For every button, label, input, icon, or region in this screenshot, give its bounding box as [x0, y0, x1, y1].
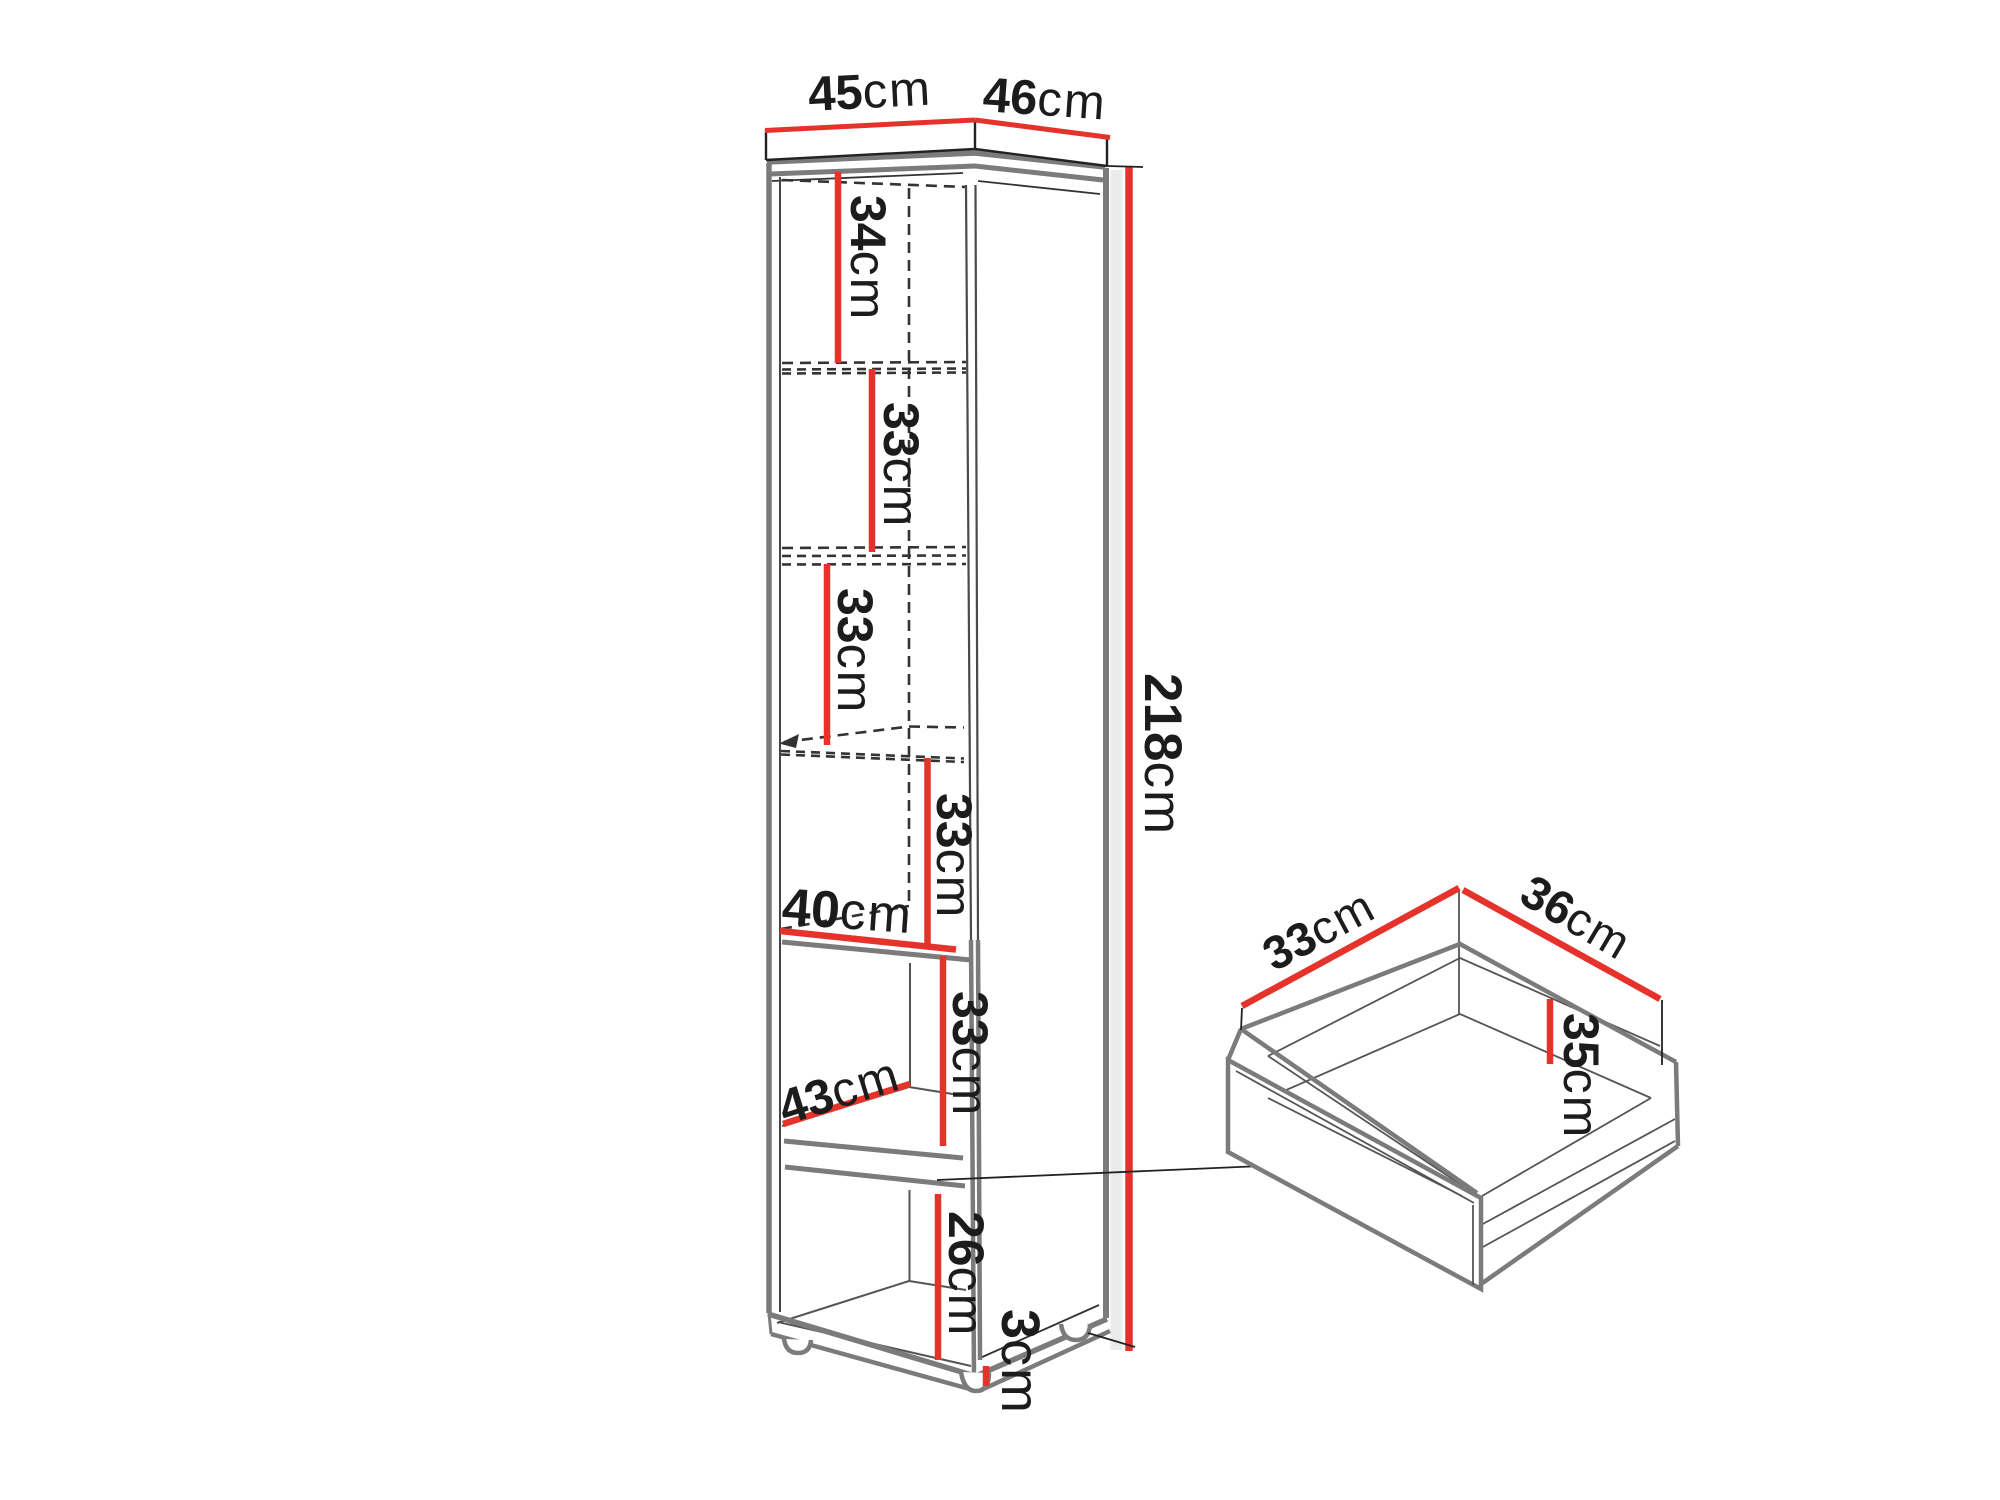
svg-text:3cm: 3cm — [990, 1309, 1050, 1415]
svg-text:33cm: 33cm — [926, 793, 982, 919]
svg-text:45cm: 45cm — [807, 62, 934, 122]
svg-text:218cm: 218cm — [1133, 673, 1192, 836]
svg-text:46cm: 46cm — [981, 68, 1108, 131]
svg-text:40cm: 40cm — [780, 878, 915, 945]
svg-text:33cm: 33cm — [942, 991, 998, 1117]
svg-text:34cm: 34cm — [840, 195, 896, 321]
svg-text:26cm: 26cm — [938, 1211, 994, 1337]
svg-text:33cm: 33cm — [827, 588, 883, 714]
svg-text:35cm: 35cm — [1553, 1013, 1609, 1139]
svg-text:33cm: 33cm — [873, 402, 929, 528]
